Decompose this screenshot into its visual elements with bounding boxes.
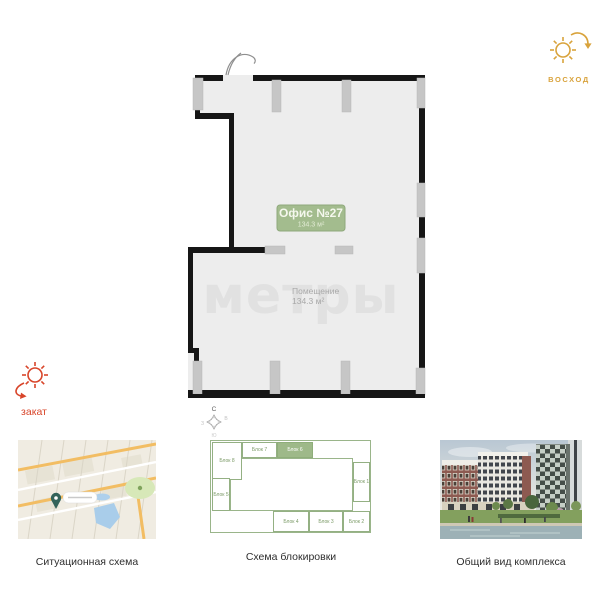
scheme-block: Блок 5 (212, 478, 230, 511)
compass-rose: С В З Ю (199, 404, 231, 440)
sunrise-indicator: ВОСХОД (540, 28, 598, 84)
complex-render-image (440, 440, 582, 539)
plan-interior (188, 75, 425, 396)
office-label-text: Офис №27 (279, 206, 343, 220)
room-name-text: Помещение (292, 286, 339, 296)
scheme-block: Блок 7 (242, 442, 277, 458)
compass-icon: С В З Ю (199, 404, 231, 440)
scheme-block: Блок 8 (212, 442, 242, 480)
room-area-text: 134.3 м² (292, 296, 324, 306)
map-park-marker (138, 486, 142, 490)
map-caption: Ситуационная схема (18, 556, 156, 568)
office-label: Офис №27 134.3 м² (277, 205, 345, 231)
render-caption: Общий вид комплекса (440, 556, 582, 568)
scheme-block: Блок 4 (273, 511, 309, 532)
map-image (18, 440, 156, 539)
scheme-block: Блок 1 (353, 462, 370, 502)
entrance-door (226, 53, 255, 75)
sunset-indicator: закат (8, 360, 60, 418)
sunset-icon (8, 360, 60, 400)
floor-plan-drawing: метры (185, 45, 427, 400)
scheme-courtyard (230, 458, 353, 511)
thumbnail-complex-view[interactable]: Общий вид комплекса (440, 440, 582, 568)
render-walkway (440, 523, 582, 526)
compass-east: В (224, 416, 228, 422)
compass-south: Ю (211, 433, 216, 439)
bottom-wall-outer (188, 394, 425, 398)
floor-plan: метры (185, 45, 427, 400)
scheme-block: Блок 6 (277, 442, 313, 458)
thumbnail-situation-map[interactable]: Ситуационная схема (18, 440, 156, 568)
office-area-text: 134.3 м² (298, 222, 325, 229)
thumbnail-block-scheme[interactable]: Блок 8Блок 7Блок 6Блок 1Блок 2Блок 3Блок… (210, 440, 372, 563)
scheme-block: Блок 2 (343, 511, 370, 532)
block-scheme: Блок 8Блок 7Блок 6Блок 1Блок 2Блок 3Блок… (210, 440, 372, 535)
sunrise-icon (541, 28, 597, 68)
scheme-caption: Схема блокировки (210, 551, 372, 563)
scheme-block: Блок 3 (309, 511, 343, 532)
compass-west: З (201, 421, 204, 427)
sunrise-label: ВОСХОД (540, 75, 598, 84)
sunset-label: закат (8, 406, 60, 418)
compass-north: С (212, 406, 217, 413)
